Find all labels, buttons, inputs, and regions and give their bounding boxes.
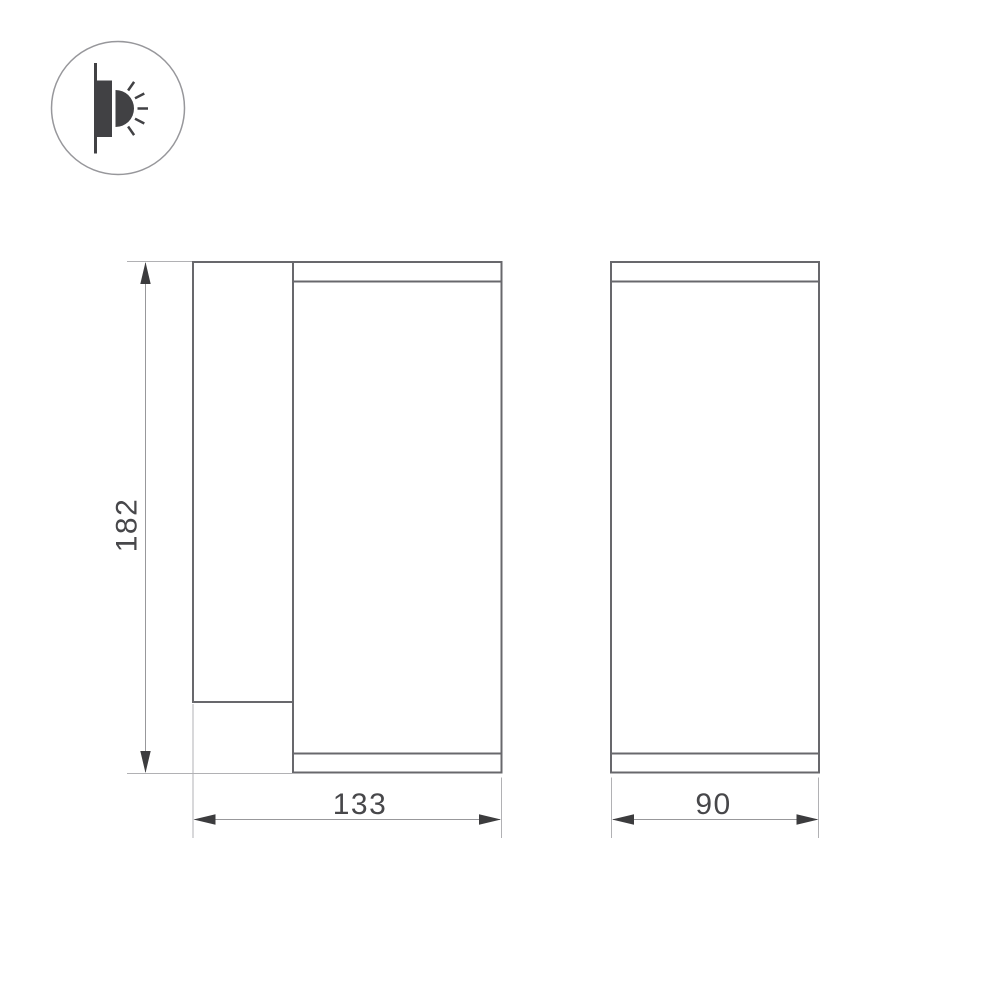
depth-dimension-label: 90 [695,788,731,821]
drawing-canvas: 182 133 90 [0,0,1000,1000]
depth-arrow-right-icon [797,814,819,824]
side-view-backplate [193,262,293,702]
technical-drawing: 182 133 90 [0,0,1000,1000]
width-dimension: 133 [193,704,502,838]
front-view-body [611,262,819,773]
height-arrow-down-icon [140,751,150,773]
width-dimension-label: 133 [333,788,388,821]
height-arrow-up-icon [140,262,150,284]
width-arrow-left-icon [194,814,216,824]
wall-light-icon [52,42,185,175]
height-dimension: 182 [111,262,293,774]
depth-arrow-left-icon [612,814,634,824]
height-dimension-label: 182 [111,498,144,553]
width-arrow-right-icon [479,814,501,824]
height-dimension-label-group: 182 [111,498,144,553]
side-view [193,262,502,773]
side-view-body [293,262,502,773]
icon-fixture-body [97,81,113,138]
depth-dimension: 90 [612,778,819,839]
front-view [611,262,819,773]
